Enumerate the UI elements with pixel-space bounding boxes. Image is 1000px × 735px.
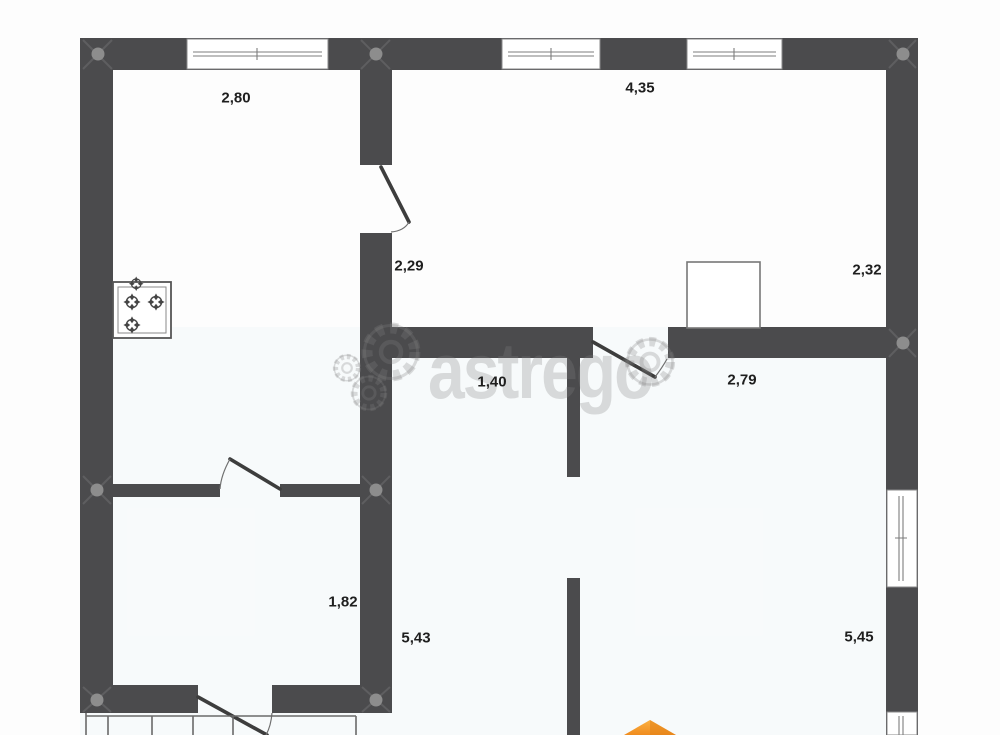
wall-divider-upper xyxy=(360,70,392,165)
window-top-2 xyxy=(502,39,600,69)
furniture-box xyxy=(687,262,760,328)
door-hall-top xyxy=(381,167,409,232)
window-right-2 xyxy=(887,712,917,735)
wall-room-left-b xyxy=(280,484,362,497)
dimension-label-2-80: 2,80 xyxy=(221,90,250,107)
dimension-label-2-79: 2,79 xyxy=(727,372,756,389)
floor-plan-canvas: astrego 2,80 4,35 2,29 2,32 1,40 2,79 1,… xyxy=(0,0,1000,735)
dimension-label-1-40: 1,40 xyxy=(477,374,506,391)
dimension-label-5-43: 5,43 xyxy=(401,630,430,647)
window-top-1 xyxy=(187,39,328,69)
dimension-label-2-29: 2,29 xyxy=(394,258,423,275)
stove-icon xyxy=(113,276,171,338)
dimension-label-2-32: 2,32 xyxy=(852,262,881,279)
wall-right xyxy=(886,38,918,735)
window-right-1 xyxy=(887,490,917,587)
wall-room-left-a xyxy=(100,484,220,497)
watermark-text: astrego xyxy=(428,331,652,410)
wall-hall-right xyxy=(668,327,886,358)
dimension-label-4-35: 4,35 xyxy=(625,80,654,97)
window-top-3 xyxy=(687,39,782,69)
wall-thin-lower xyxy=(567,578,580,735)
wall-left xyxy=(80,38,113,713)
dimension-label-5-45: 5,45 xyxy=(844,629,873,646)
dimension-label-1-82: 1,82 xyxy=(328,594,357,611)
wall-divider-lower xyxy=(360,233,392,713)
